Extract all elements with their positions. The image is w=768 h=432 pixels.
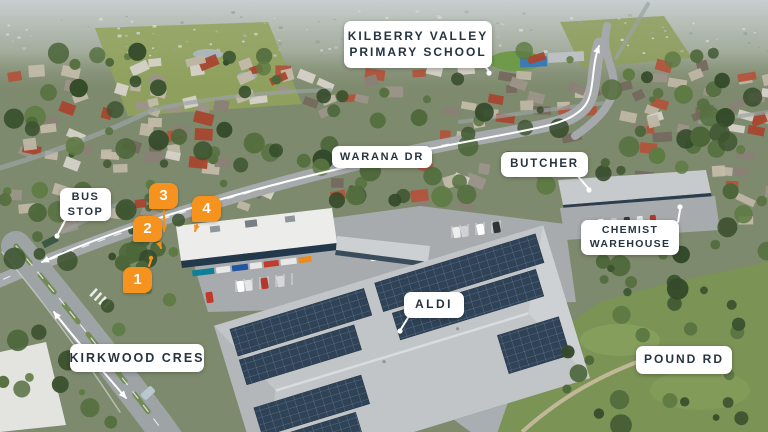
label-line: KILBERRY VALLEY (348, 29, 488, 45)
marker-4: 4 (192, 196, 221, 222)
marker-2: 2 (133, 216, 162, 242)
aerial-location-map: KILBERRY VALLEY PRIMARY SCHOOL WARANA DR… (0, 0, 768, 432)
label-line: CHEMIST (602, 224, 658, 238)
label-warana-dr: WARANA DR (332, 146, 432, 168)
marker-3: 3 (149, 183, 178, 209)
label-line: KIRKWOOD CRES (69, 350, 204, 366)
label-butcher: BUTCHER (501, 152, 588, 177)
label-kilberry-valley-primary-school: KILBERRY VALLEY PRIMARY SCHOOL (344, 21, 492, 68)
label-line: POUND RD (644, 352, 724, 368)
label-pound-rd: POUND RD (636, 346, 732, 374)
label-line: BUS (72, 190, 100, 204)
label-line: WAREHOUSE (590, 238, 671, 252)
label-line: WARANA DR (340, 150, 424, 164)
label-line: BUTCHER (510, 157, 579, 172)
label-line: ALDI (415, 297, 453, 313)
label-line: PRIMARY SCHOOL (349, 45, 486, 61)
label-line: STOP (68, 205, 104, 219)
label-chemist-warehouse: CHEMIST WAREHOUSE (581, 220, 679, 255)
label-bus-stop: BUS STOP (60, 188, 111, 221)
marker-1: 1 (123, 267, 152, 293)
label-aldi: ALDI (404, 292, 464, 318)
label-kirkwood-cres: KIRKWOOD CRES (70, 344, 204, 372)
